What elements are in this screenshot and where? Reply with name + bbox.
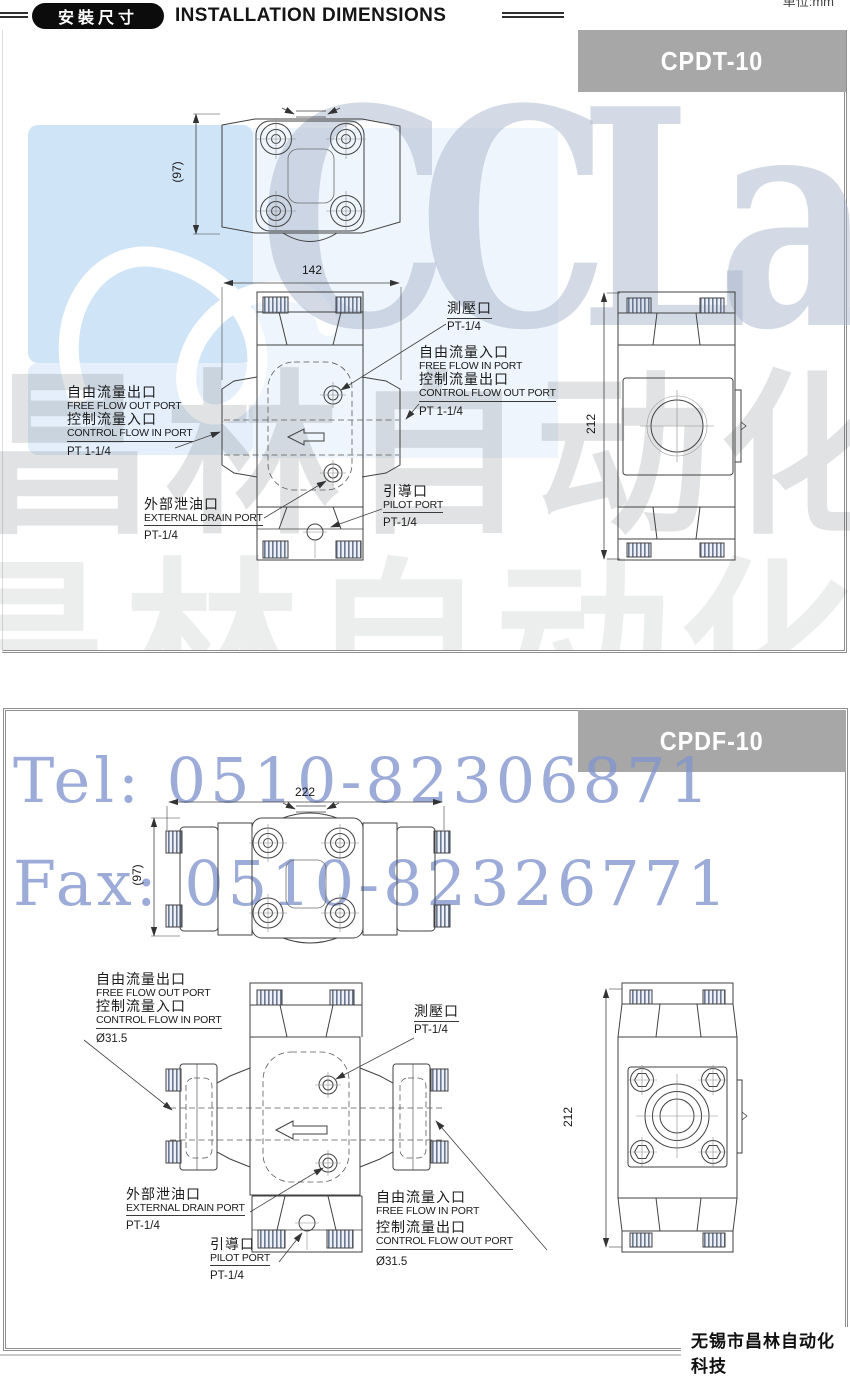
label-test-port-cpdt10: 測壓口 PT-1/4 <box>447 301 492 334</box>
company-name: 无锡市昌林自动化科技 <box>681 1327 850 1380</box>
model-name-cpdf10: CPDF-10 <box>660 726 764 757</box>
label-flow-in-group-cpdt10: 自由流量入口 FREE FLOW IN PORT 控制流量出口 CONTROL … <box>419 345 556 419</box>
dim-height-cpdf10: 212 <box>561 1097 575 1137</box>
model-tab-cpdf10: CPDF-10 <box>578 710 846 772</box>
section-box-cpdt10 <box>2 30 847 653</box>
header-rule-left <box>0 12 28 18</box>
label-drain-port-cpdt10: 外部泄油口 EXTERNAL DRAIN PORT PT-1/4 <box>144 497 263 543</box>
model-name-cpdt10: CPDT-10 <box>661 46 764 77</box>
header-rule-right <box>502 12 564 18</box>
unit-note: 单位:mm <box>783 0 834 7</box>
model-tab-cpdt10: CPDT-10 <box>578 30 846 92</box>
header-badge: 安裝尺寸 <box>32 3 164 29</box>
dim-height-cpdt10: 212 <box>584 404 598 444</box>
label-test-port-cpdf10: 測壓口 PT-1/4 <box>414 1004 459 1037</box>
header-badge-text: 安裝尺寸 <box>58 4 138 28</box>
label-pilot-port-cpdt10: 引導口 PILOT PORT PT-1/4 <box>383 484 443 530</box>
label-pilot-port-cpdf10: 引導口 PILOT PORT PT-1/4 <box>210 1237 270 1283</box>
label-flow-out-group-cpdt10: 自由流量出口 FREE FLOW OUT PORT 控制流量入口 CONTROL… <box>67 385 193 459</box>
dim-width-cpdt10: 142 <box>294 263 330 277</box>
label-drain-port-cpdf10: 外部泄油口 EXTERNAL DRAIN PORT PT-1/4 <box>126 1187 245 1233</box>
page-title: INSTALLATION DIMENSIONS <box>175 5 446 27</box>
dim-depth-cpdt10: (97) <box>170 152 184 192</box>
label-flow-in-group-cpdf10: 自由流量入口 FREE FLOW IN PORT 控制流量出口 CONTROL … <box>376 1190 513 1269</box>
dim-depth-cpdf10: (97) <box>130 855 144 895</box>
label-flow-out-group-cpdf10: 自由流量出口 FREE FLOW OUT PORT 控制流量入口 CONTROL… <box>96 972 222 1046</box>
dim-width-cpdf10: 222 <box>287 785 323 799</box>
